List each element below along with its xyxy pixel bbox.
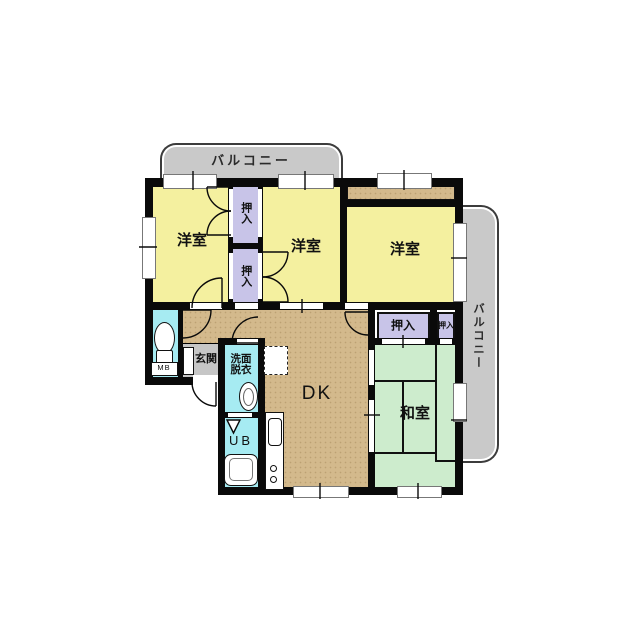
tatami-line xyxy=(375,452,437,454)
opening-closet-japanese xyxy=(382,339,425,344)
wall-under-ledge xyxy=(345,200,455,207)
opening-room3-dk xyxy=(345,303,368,309)
tatami-line xyxy=(375,380,436,382)
wall-dk-japanese xyxy=(368,310,375,487)
closet-top-slide-east xyxy=(258,189,262,237)
tatami-line xyxy=(435,345,437,460)
opening-room1-door xyxy=(190,303,222,309)
washbasin-inner xyxy=(243,388,254,406)
window-room3-right xyxy=(453,223,467,302)
closet-top-slide-west xyxy=(229,189,233,237)
bathtub-inner xyxy=(229,458,253,481)
closet-bottom-slide-east xyxy=(258,253,262,299)
closet-label-bottom: 押入 xyxy=(239,265,251,287)
opening-washroom-bath-door xyxy=(228,413,252,417)
window-room1-left xyxy=(142,217,156,279)
refrigerator-space xyxy=(264,346,288,375)
kitchen-sink xyxy=(268,418,282,446)
stove-burner-2 xyxy=(270,476,277,483)
opening-dk-japanese-1 xyxy=(369,350,374,385)
meter-box-label: MB xyxy=(157,364,170,372)
closet-label-top: 押入 xyxy=(239,202,251,224)
room-label-japanese: 和室 xyxy=(400,406,430,422)
window-room1-top xyxy=(163,174,217,189)
room-label-entrance: 玄関 xyxy=(195,354,217,366)
room-label-western-1: 洋室 xyxy=(177,233,207,249)
opening-room2-dk xyxy=(280,303,323,309)
window-dk-bottom xyxy=(293,486,349,498)
door-arc-entrance xyxy=(192,382,216,406)
opening-dk-japanese-2 xyxy=(369,400,374,452)
opening-closet-hall xyxy=(235,303,258,309)
window-room2-top xyxy=(278,174,334,189)
room-label-washroom: 洗面 脱衣 xyxy=(231,354,252,376)
stove-burner-1 xyxy=(270,465,277,472)
room-label-western-2: 洋室 xyxy=(291,239,321,255)
floor-plan: バルコニー バルコニー xyxy=(0,0,640,640)
entrance-step xyxy=(193,375,218,385)
shoe-cabinet xyxy=(183,347,194,375)
balcony-top-label: バルコニー xyxy=(211,154,291,168)
wall-room2-room3 xyxy=(340,178,347,302)
window-room3-top xyxy=(377,173,432,189)
closet-label-japanese-large: 押入 xyxy=(391,320,415,333)
wall-left xyxy=(145,178,153,385)
window-japanese-bottom xyxy=(397,486,442,498)
room-label-western-3: 洋室 xyxy=(390,242,420,258)
opening-washroom-door xyxy=(237,339,258,344)
tatami-line xyxy=(435,460,455,462)
room-label-unit-bath: UB xyxy=(229,434,253,448)
opening-closet-japanese-small xyxy=(440,339,452,344)
closet-bottom-slide-west xyxy=(229,253,233,299)
room-label-dk: DK xyxy=(302,384,332,404)
washroom-label-line2: 脱衣 xyxy=(231,365,252,376)
balcony-right-label: バルコニー xyxy=(472,302,484,370)
window-japanese-right xyxy=(453,383,467,422)
wall-toilet-bottom xyxy=(145,377,195,385)
wall-closet-divider xyxy=(228,243,263,249)
closet-label-japanese-small: 押入 xyxy=(438,322,454,330)
